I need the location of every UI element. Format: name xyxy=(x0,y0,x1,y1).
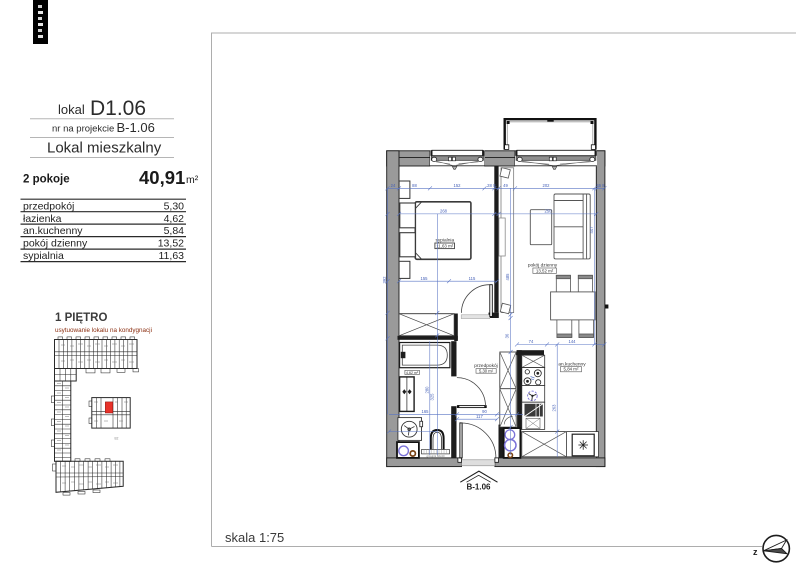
svg-text:D1.06: D1.06 xyxy=(90,97,146,120)
svg-text:grzejnik 60x40: grzejnik 60x40 xyxy=(426,454,444,458)
svg-text:m²: m² xyxy=(186,174,199,186)
svg-text:28: 28 xyxy=(487,183,492,188)
svg-text:usytuowanie lokalu na kondygna: usytuowanie lokalu na kondygnacji xyxy=(55,327,152,334)
svg-text:202: 202 xyxy=(543,183,551,188)
svg-text:263: 263 xyxy=(552,404,557,412)
svg-text:skala 1:75: skala 1:75 xyxy=(225,530,284,545)
svg-text:5,30: 5,30 xyxy=(164,200,185,212)
svg-text:5,30 m²: 5,30 m² xyxy=(479,368,494,373)
svg-text:5,84: 5,84 xyxy=(164,225,185,237)
svg-text:lokal: lokal xyxy=(58,102,85,117)
svg-text:88: 88 xyxy=(412,183,417,188)
svg-text:26: 26 xyxy=(596,183,601,188)
svg-text:152: 152 xyxy=(454,183,462,188)
svg-text:1 PIĘTRO: 1 PIĘTRO xyxy=(55,312,107,324)
svg-text:155: 155 xyxy=(421,276,429,281)
svg-text:280: 280 xyxy=(424,386,429,394)
svg-text:4,62 m²: 4,62 m² xyxy=(406,371,419,375)
svg-text:B2: B2 xyxy=(115,437,119,441)
svg-text:268: 268 xyxy=(440,209,448,214)
svg-text:90: 90 xyxy=(482,409,487,414)
svg-text:447: 447 xyxy=(589,226,594,234)
svg-text:165: 165 xyxy=(422,409,430,414)
svg-text:117: 117 xyxy=(476,414,483,419)
svg-text:B-1.06: B-1.06 xyxy=(466,483,491,492)
svg-text:2 pokoje: 2 pokoje xyxy=(23,174,70,186)
svg-text:pokój dzienny: pokój dzienny xyxy=(23,238,88,250)
svg-text:Lokal mieszkalny: Lokal mieszkalny xyxy=(47,140,162,157)
svg-text:74: 74 xyxy=(529,339,534,344)
svg-text:24: 24 xyxy=(391,183,396,188)
svg-text:49: 49 xyxy=(503,183,508,188)
svg-text:przedpokój: przedpokój xyxy=(23,200,74,212)
svg-text:5,84 m²: 5,84 m² xyxy=(564,367,579,372)
svg-text:144: 144 xyxy=(569,339,577,344)
svg-text:115: 115 xyxy=(469,276,476,281)
svg-text:325: 325 xyxy=(430,393,435,401)
svg-text:z: z xyxy=(753,547,758,557)
svg-text:11,63: 11,63 xyxy=(159,250,185,262)
svg-text:nr na projekcie: nr na projekcie xyxy=(52,124,114,135)
svg-text:40,91: 40,91 xyxy=(139,167,185,188)
svg-text:250: 250 xyxy=(545,209,553,214)
svg-text:13,52 m²: 13,52 m² xyxy=(536,268,554,273)
svg-text:sypialnia: sypialnia xyxy=(23,250,64,262)
svg-text:13,52: 13,52 xyxy=(158,238,184,250)
svg-text:36: 36 xyxy=(505,333,510,338)
svg-text:łazienka: łazienka xyxy=(23,213,62,225)
svg-text:4,62: 4,62 xyxy=(164,213,185,225)
svg-text:an.kuchenny: an.kuchenny xyxy=(23,225,83,237)
svg-text:B-1.06: B-1.06 xyxy=(117,120,155,135)
svg-text:392: 392 xyxy=(382,276,387,284)
svg-text:11,63 m²: 11,63 m² xyxy=(436,243,454,248)
svg-text:485: 485 xyxy=(505,273,510,281)
